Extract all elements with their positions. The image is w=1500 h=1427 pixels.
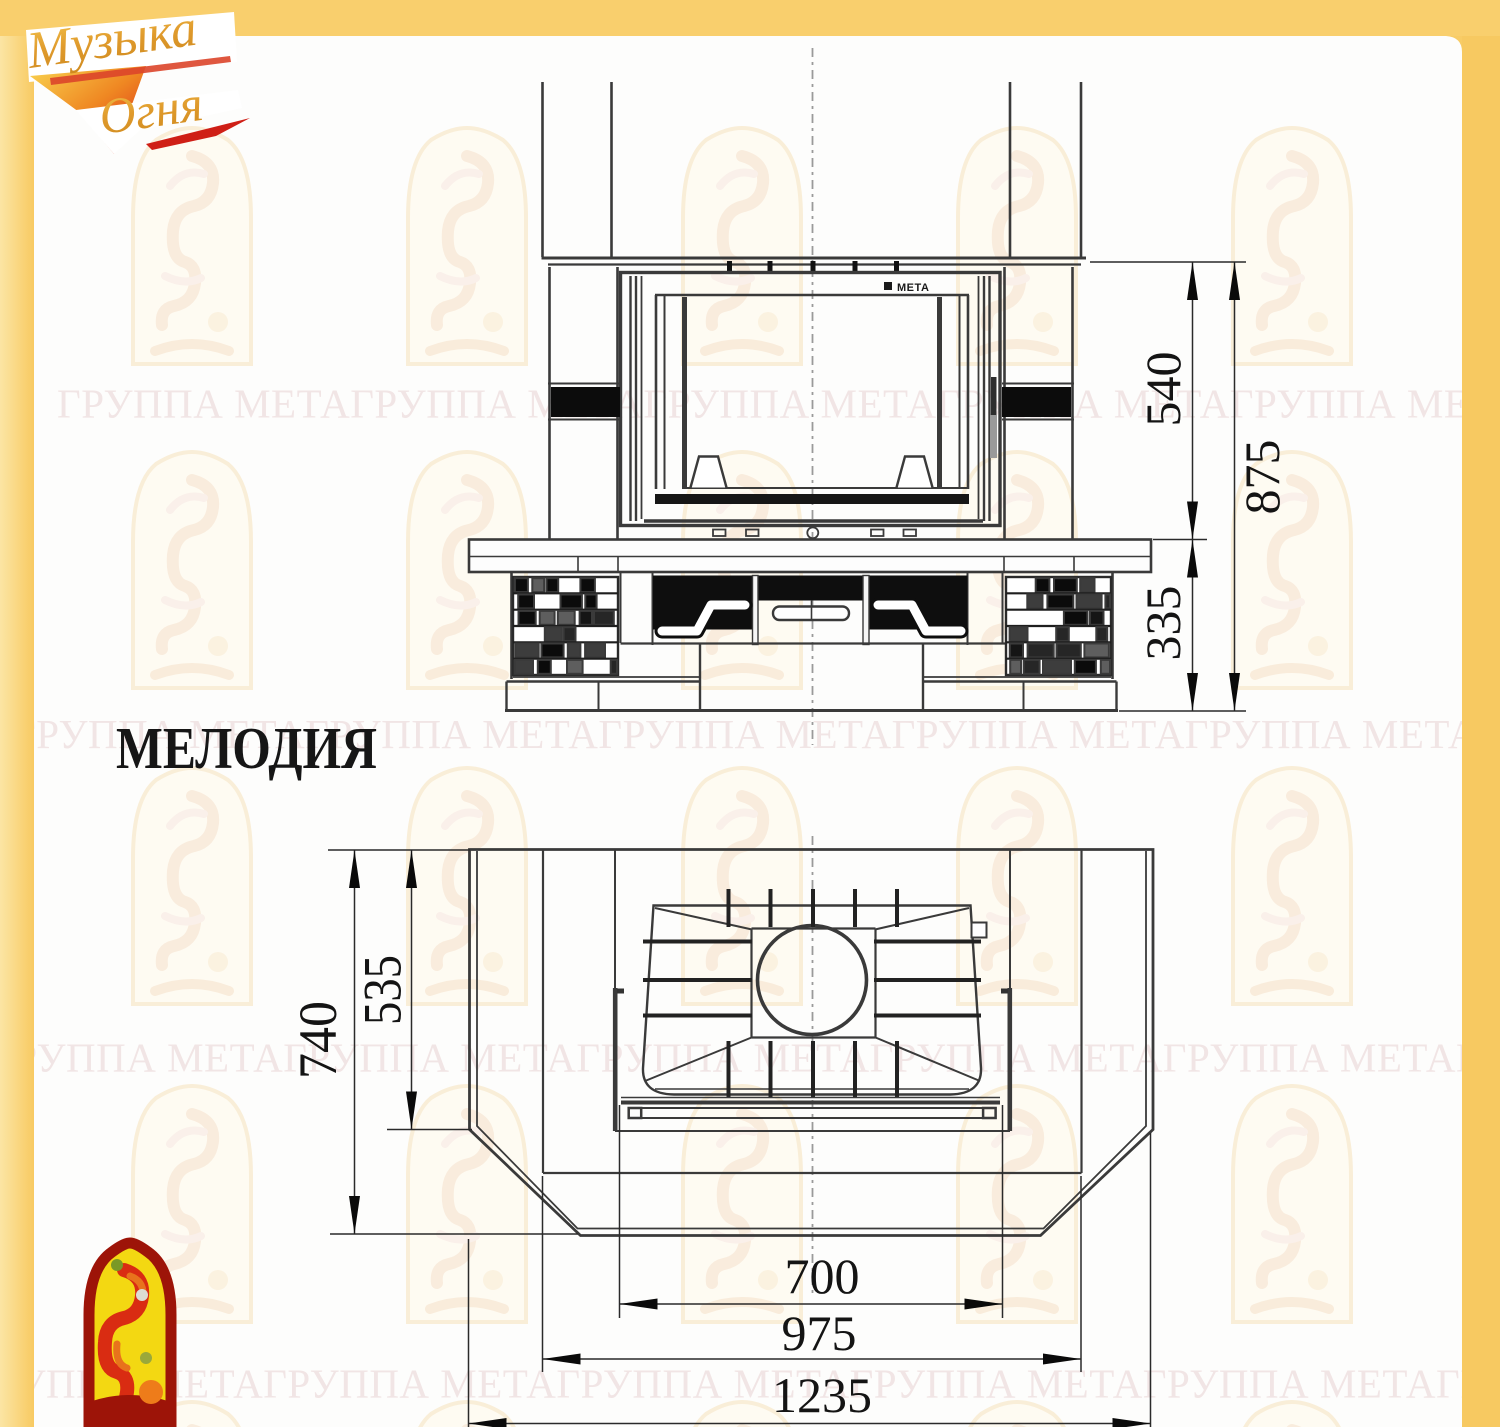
svg-text:540: 540 (1135, 352, 1191, 427)
svg-text:740: 740 (288, 1001, 348, 1079)
svg-text:ГРУППА МЕТАГРУППА МЕТАГРУППА М: ГРУППА МЕТАГРУППА МЕТАГРУППА МЕТАГРУППА … (0, 1361, 1500, 1407)
svg-text:975: 975 (782, 1305, 857, 1361)
svg-text:700: 700 (785, 1248, 860, 1304)
svg-text:ГРУППА МЕТАГРУППА МЕТАГРУППА М: ГРУППА МЕТАГРУППА МЕТАГРУППА МЕТАГРУППА … (0, 1035, 1500, 1081)
svg-text:МЕЛОДИЯ: МЕЛОДИЯ (116, 715, 377, 781)
svg-text:МЕТА: МЕТА (897, 282, 929, 294)
svg-text:875: 875 (1234, 440, 1290, 515)
svg-text:1235: 1235 (772, 1367, 872, 1423)
svg-text:335: 335 (1135, 586, 1191, 661)
svg-text:ГРУППА МЕТАГРУППА МЕТАГРУППА М: ГРУППА МЕТАГРУППА МЕТАГРУППА МЕТАГРУППА … (57, 381, 1500, 427)
svg-text:535: 535 (353, 955, 413, 1025)
